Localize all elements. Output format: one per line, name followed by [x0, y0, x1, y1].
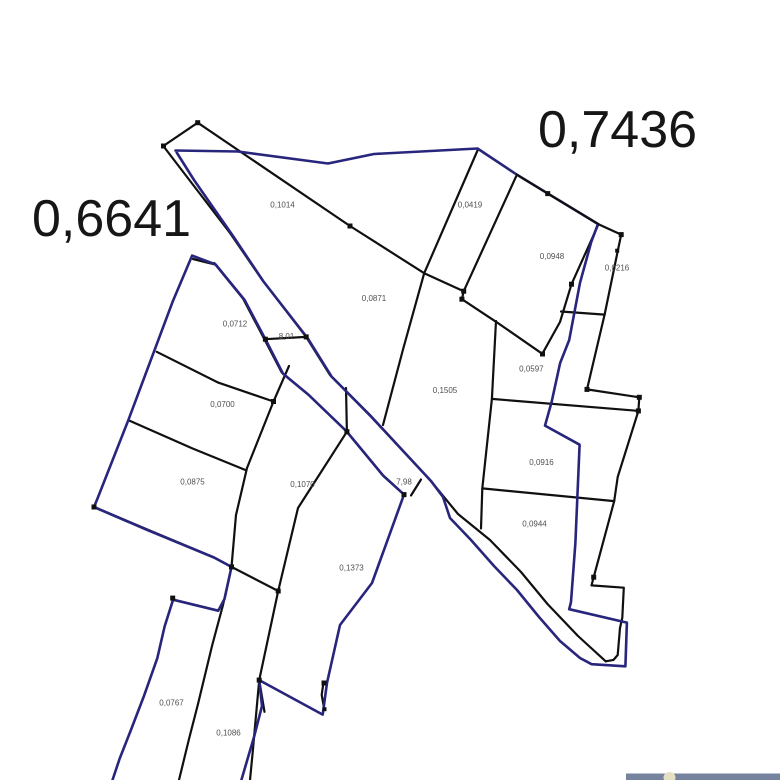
svg-text:8,01: 8,01 [279, 332, 295, 341]
svg-text:0,0871: 0,0871 [362, 294, 387, 303]
svg-text:0,0916: 0,0916 [529, 458, 554, 467]
svg-text:0,7436: 0,7436 [538, 101, 697, 159]
svg-text:0,0944: 0,0944 [522, 520, 547, 529]
svg-text:0,1373: 0,1373 [339, 564, 364, 573]
svg-text:0,0216: 0,0216 [605, 264, 630, 273]
svg-text:0,6641: 0,6641 [32, 190, 191, 248]
svg-text:7,98: 7,98 [396, 478, 412, 487]
svg-text:0,1014: 0,1014 [270, 201, 295, 210]
svg-text:0,0419: 0,0419 [458, 201, 483, 210]
svg-text:0,1086: 0,1086 [216, 729, 241, 738]
svg-text:0,0875: 0,0875 [180, 478, 205, 487]
svg-text:0,0767: 0,0767 [159, 699, 184, 708]
svg-text:0,0712: 0,0712 [223, 319, 248, 328]
svg-text:0,1505: 0,1505 [433, 386, 458, 395]
svg-text:0,1070: 0,1070 [290, 480, 315, 489]
svg-text:0,0597: 0,0597 [519, 365, 544, 374]
svg-text:0,0948: 0,0948 [540, 252, 565, 261]
svg-text:0,0700: 0,0700 [210, 400, 235, 409]
